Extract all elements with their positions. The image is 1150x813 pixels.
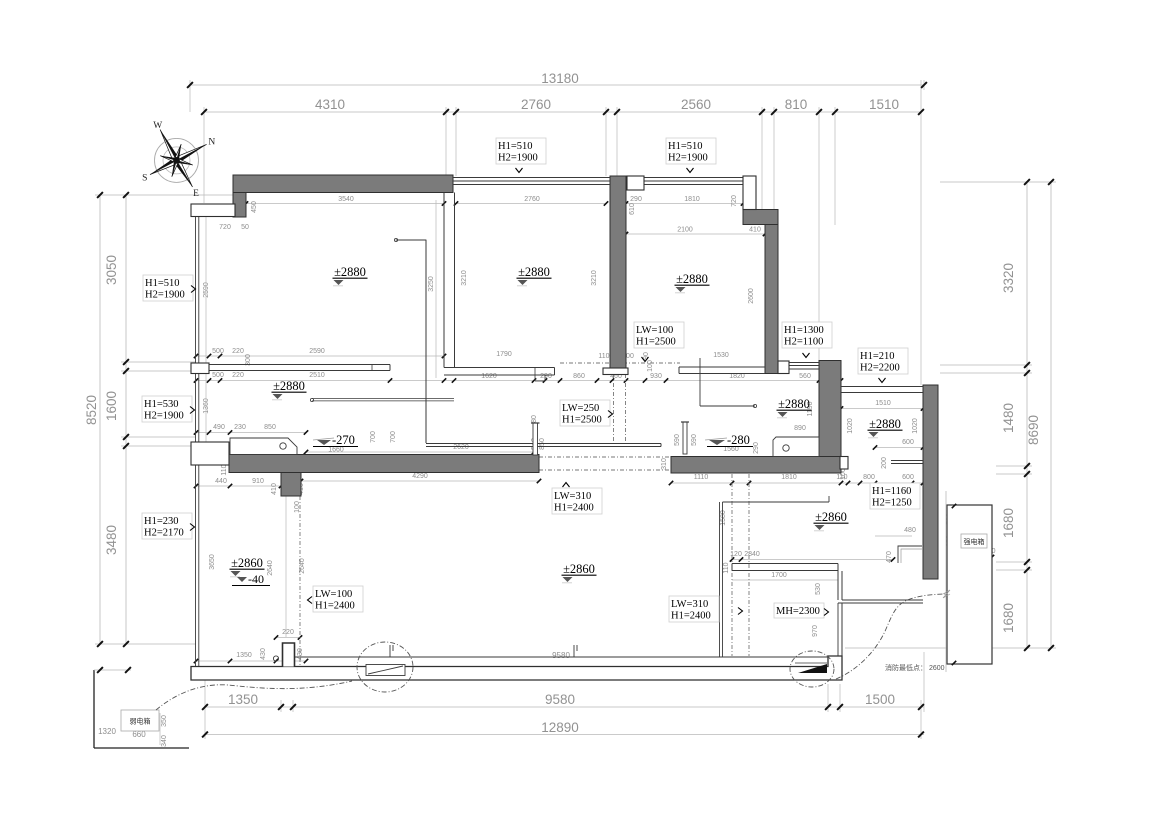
- svg-text:1580: 1580: [720, 510, 727, 526]
- svg-text:-280: -280: [727, 433, 750, 447]
- svg-text:1350: 1350: [228, 692, 258, 707]
- svg-text:1510: 1510: [869, 97, 899, 112]
- svg-text:200: 200: [881, 457, 888, 469]
- svg-text:410: 410: [749, 227, 761, 234]
- svg-text:480: 480: [904, 527, 916, 534]
- svg-text:2640: 2640: [267, 560, 274, 576]
- svg-text:2510: 2510: [309, 372, 325, 379]
- svg-text:3050: 3050: [104, 255, 119, 285]
- svg-text:-40: -40: [248, 572, 264, 586]
- svg-text:H1=230: H1=230: [144, 516, 179, 527]
- svg-text:2760: 2760: [521, 97, 551, 112]
- svg-text:560: 560: [799, 373, 811, 380]
- svg-text:9580: 9580: [552, 651, 570, 660]
- svg-text:810: 810: [785, 97, 808, 112]
- svg-text:4310: 4310: [315, 97, 345, 112]
- svg-text:290: 290: [753, 442, 760, 454]
- svg-text:H2=1900: H2=1900: [145, 290, 185, 301]
- svg-text:H1=2400: H1=2400: [671, 611, 711, 622]
- svg-text:H2=1100: H2=1100: [784, 337, 823, 348]
- svg-text:910: 910: [252, 478, 264, 485]
- svg-text:1790: 1790: [496, 351, 512, 358]
- svg-text:800: 800: [863, 474, 875, 481]
- svg-text:LW=100: LW=100: [636, 325, 673, 336]
- svg-text:H2=1250: H2=1250: [872, 498, 912, 509]
- svg-text:340: 340: [161, 735, 168, 747]
- svg-text:970: 970: [812, 625, 819, 637]
- svg-text:1680: 1680: [1001, 508, 1016, 538]
- svg-text:590: 590: [674, 434, 681, 446]
- svg-text:±2880: ±2880: [518, 265, 550, 279]
- svg-text:350: 350: [161, 715, 168, 727]
- svg-text:110: 110: [598, 353, 609, 360]
- svg-text:4290: 4290: [412, 473, 428, 480]
- svg-text:720: 720: [731, 195, 738, 207]
- svg-text:H1=510: H1=510: [145, 278, 180, 289]
- svg-text:LW=310: LW=310: [671, 599, 708, 610]
- svg-text:1810: 1810: [781, 474, 797, 481]
- svg-text:590: 590: [691, 434, 698, 446]
- svg-text:±2860: ±2860: [563, 562, 595, 576]
- svg-text:H1=1300: H1=1300: [784, 325, 824, 336]
- svg-text:500: 500: [212, 372, 224, 379]
- svg-text:220: 220: [282, 629, 294, 636]
- svg-text:1020: 1020: [847, 418, 854, 434]
- svg-text:H2=1900: H2=1900: [498, 153, 538, 164]
- svg-text:230: 230: [234, 424, 246, 431]
- svg-text:H1=2500: H1=2500: [562, 415, 602, 426]
- svg-text:W: W: [153, 121, 162, 131]
- svg-text:8520: 8520: [84, 395, 99, 425]
- svg-text:H1=510: H1=510: [668, 141, 703, 152]
- svg-text:3650: 3650: [209, 554, 216, 570]
- svg-text:1620: 1620: [481, 373, 497, 380]
- svg-text:100: 100: [647, 360, 654, 372]
- svg-text:H2=1900: H2=1900: [668, 153, 708, 164]
- svg-text:430: 430: [297, 648, 304, 660]
- svg-text:MH=2300: MH=2300: [776, 606, 820, 617]
- svg-text:600: 600: [902, 474, 914, 481]
- svg-text:±2880: ±2880: [869, 417, 901, 431]
- svg-text:110: 110: [221, 464, 228, 475]
- svg-text:2590: 2590: [309, 348, 325, 355]
- svg-text:890: 890: [794, 425, 806, 432]
- svg-text:3480: 3480: [104, 525, 119, 555]
- svg-text:850: 850: [264, 424, 276, 431]
- svg-text:80: 80: [531, 415, 538, 423]
- svg-text:LW=310: LW=310: [554, 491, 591, 502]
- svg-text:H1=2400: H1=2400: [315, 601, 355, 612]
- svg-text:600: 600: [902, 439, 914, 446]
- svg-text:H1=2400: H1=2400: [554, 503, 594, 514]
- svg-text:N: N: [208, 138, 215, 148]
- svg-text:930: 930: [650, 373, 662, 380]
- svg-text:H2=2170: H2=2170: [144, 528, 184, 539]
- svg-text:H1=210: H1=210: [860, 351, 895, 362]
- svg-text:1810: 1810: [684, 196, 700, 203]
- svg-text:1020: 1020: [912, 418, 919, 434]
- svg-text:H1=1160: H1=1160: [872, 486, 911, 497]
- svg-text:1350: 1350: [236, 652, 252, 659]
- svg-text:H2=1900: H2=1900: [144, 411, 184, 422]
- svg-text:110: 110: [723, 562, 730, 573]
- svg-text:S: S: [142, 173, 147, 183]
- svg-text:1360: 1360: [203, 398, 210, 414]
- svg-text:2620: 2620: [453, 444, 469, 451]
- svg-text:9580: 9580: [545, 692, 575, 707]
- svg-text:±2880: ±2880: [273, 379, 305, 393]
- svg-text:1560: 1560: [723, 446, 739, 453]
- svg-text:H1=510: H1=510: [498, 141, 533, 152]
- svg-text:1320: 1320: [98, 727, 116, 736]
- svg-text:1510: 1510: [875, 400, 891, 407]
- svg-text:2560: 2560: [681, 97, 711, 112]
- svg-text:LW=250: LW=250: [562, 403, 599, 414]
- svg-text:1480: 1480: [1001, 403, 1016, 433]
- svg-text:470: 470: [886, 551, 893, 563]
- svg-text:8690: 8690: [1026, 415, 1041, 445]
- svg-text:3210: 3210: [591, 270, 598, 286]
- svg-text:3320: 3320: [1001, 263, 1016, 293]
- svg-text:3250: 3250: [428, 276, 435, 292]
- svg-text:290: 290: [630, 196, 642, 203]
- svg-text:310: 310: [661, 458, 668, 470]
- svg-text:3210: 3210: [461, 270, 468, 286]
- svg-text:H2=2200: H2=2200: [860, 363, 900, 374]
- svg-text:1820: 1820: [729, 373, 745, 380]
- svg-text:430: 430: [260, 648, 267, 660]
- svg-text:500: 500: [212, 348, 224, 355]
- svg-text:弱电箱: 弱电箱: [130, 717, 151, 726]
- svg-text:700: 700: [390, 431, 397, 443]
- svg-text:700: 700: [370, 431, 377, 443]
- svg-text:2100: 2100: [677, 227, 693, 234]
- svg-text:±2880: ±2880: [778, 397, 810, 411]
- svg-text:860: 860: [573, 373, 585, 380]
- svg-text:50: 50: [241, 224, 249, 231]
- svg-text:2760: 2760: [524, 196, 540, 203]
- svg-text:1700: 1700: [771, 572, 787, 579]
- svg-text:1110: 1110: [694, 474, 709, 481]
- svg-text:1600: 1600: [104, 391, 119, 421]
- svg-text:440: 440: [215, 478, 227, 485]
- svg-text:530: 530: [815, 583, 822, 595]
- svg-text:±2860: ±2860: [815, 510, 847, 524]
- svg-text:410: 410: [271, 483, 278, 495]
- svg-text:290: 290: [540, 373, 552, 380]
- svg-text:720: 720: [219, 224, 231, 231]
- svg-text:3540: 3540: [338, 196, 354, 203]
- svg-text:±2860: ±2860: [231, 556, 263, 570]
- svg-text:LW=100: LW=100: [315, 589, 352, 600]
- svg-text:±2880: ±2880: [676, 272, 708, 286]
- svg-text:220: 220: [232, 348, 244, 355]
- svg-text:2840: 2840: [744, 551, 760, 558]
- svg-text:2590: 2590: [203, 282, 210, 298]
- svg-text:13180: 13180: [541, 71, 579, 86]
- svg-text:450: 450: [251, 201, 258, 213]
- svg-text:±2880: ±2880: [334, 265, 366, 279]
- svg-text:220: 220: [232, 372, 244, 379]
- svg-text:12890: 12890: [541, 720, 579, 735]
- svg-text:消防最低点： 2600: 消防最低点： 2600: [885, 663, 945, 672]
- svg-text:-270: -270: [332, 433, 355, 447]
- svg-text:2600: 2600: [748, 288, 755, 304]
- svg-text:强电箱: 强电箱: [964, 537, 985, 546]
- svg-text:H1=2500: H1=2500: [636, 337, 676, 348]
- svg-text:H1=530: H1=530: [144, 399, 179, 410]
- svg-text:610: 610: [629, 203, 636, 215]
- svg-text:1680: 1680: [1001, 603, 1016, 633]
- svg-text:1500: 1500: [865, 692, 895, 707]
- svg-text:E: E: [193, 189, 199, 199]
- svg-text:1530: 1530: [713, 352, 729, 359]
- svg-text:490: 490: [213, 424, 225, 431]
- svg-text:1660: 1660: [328, 447, 344, 454]
